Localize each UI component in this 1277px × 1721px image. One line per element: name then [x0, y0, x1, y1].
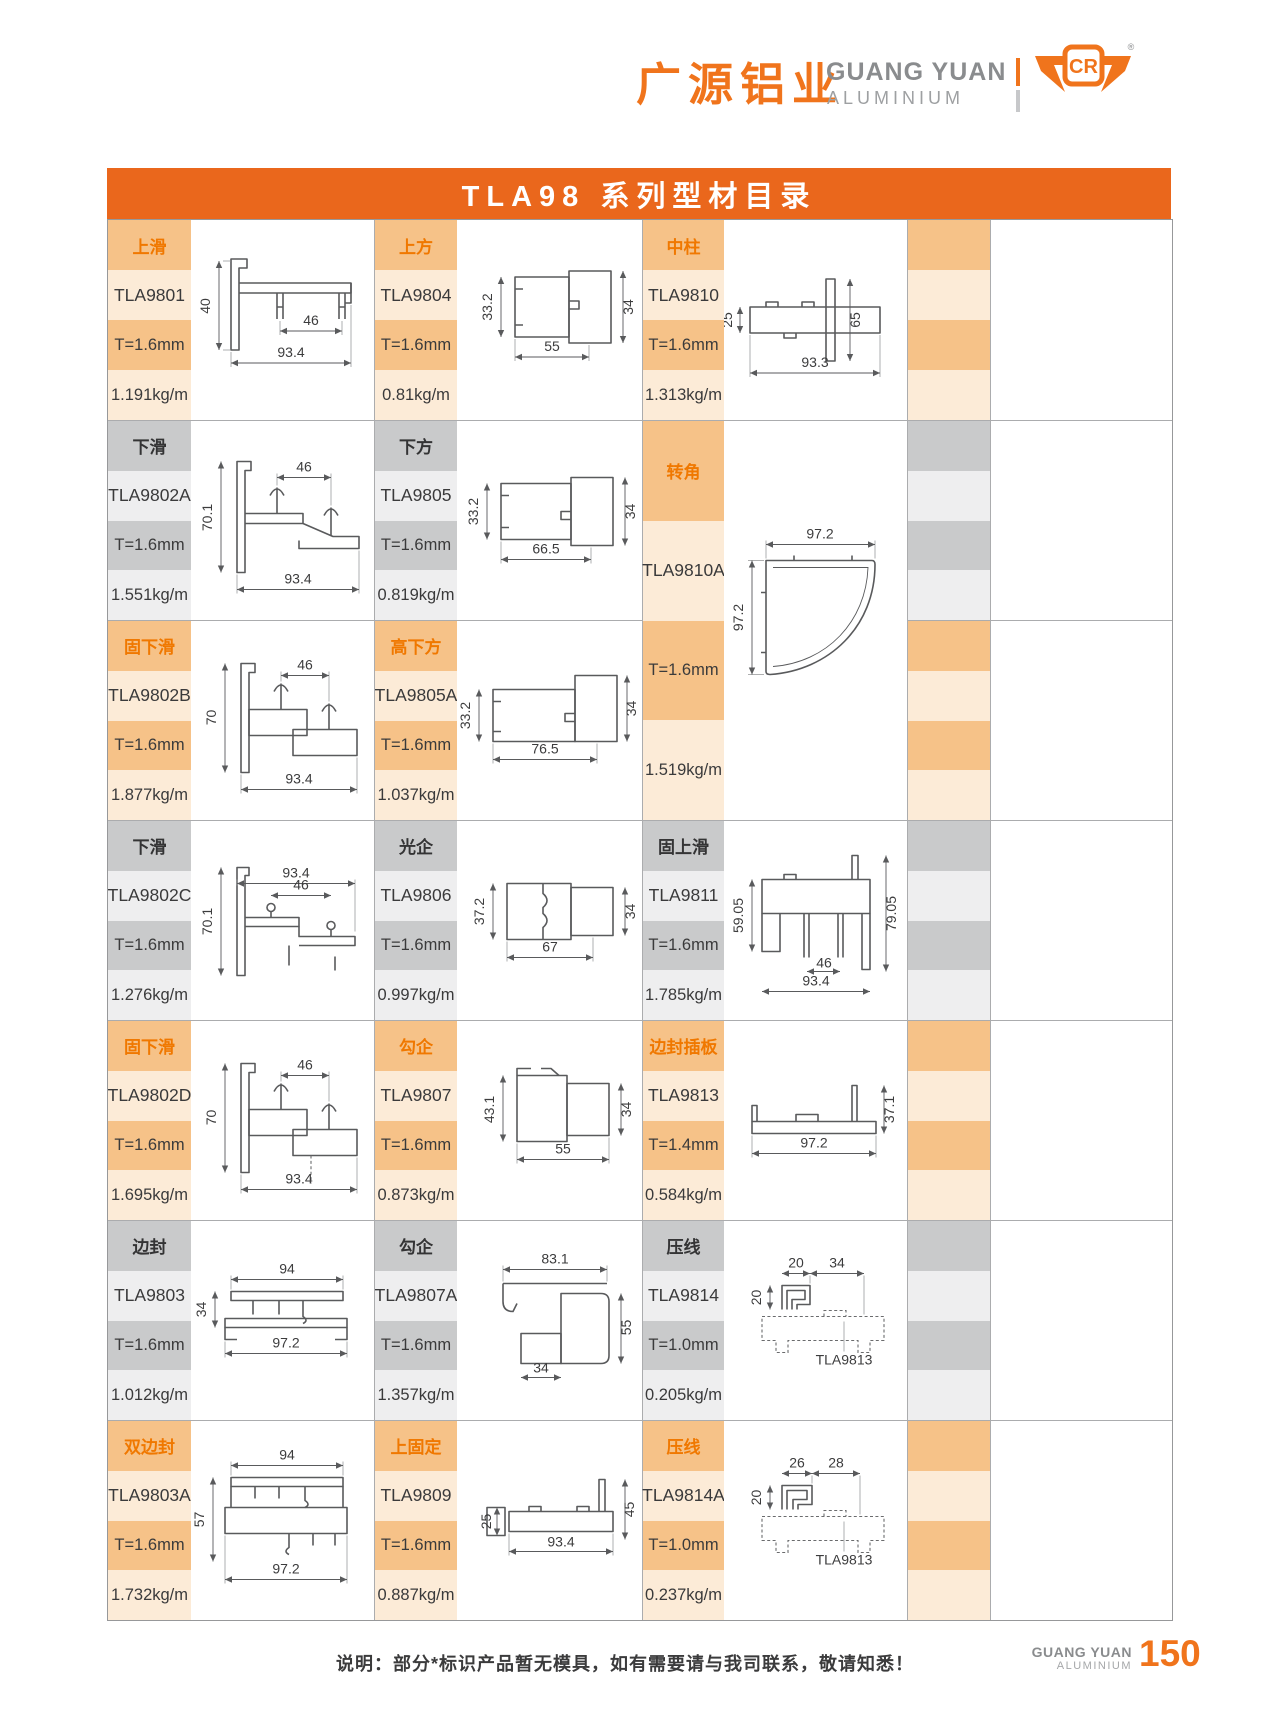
dim-label: 20: [748, 1490, 764, 1506]
category-label: 勾企: [375, 1021, 457, 1071]
dim-label: 46: [296, 459, 312, 475]
category-label: 压线: [643, 1221, 724, 1271]
entry-label-TLA9805A: 高下方 TLA9805A T=1.6mm 1.037kg/m: [374, 620, 457, 820]
profile-drawing-TLA9802A: 70.1 46 93.4: [191, 420, 374, 620]
profile-drawing-TLA9802C: 93.4 46 70.1: [191, 820, 374, 1020]
weight-label: 1.551kg/m: [108, 570, 191, 620]
dim-label: 59.05: [730, 898, 746, 933]
footer-brand-subtitle: ALUMINIUM: [1002, 1660, 1132, 1672]
profile-sketch-TLA9804: 33.2 34 55: [457, 220, 642, 420]
dim-label: 55: [555, 1141, 571, 1157]
profile-sketch-TLA9814: TLA9813 20 34 20: [724, 1221, 907, 1420]
category-label: 转角: [643, 421, 724, 521]
dim-label: 34: [829, 1255, 845, 1271]
dim-label: 37.2: [471, 898, 487, 925]
weight-label: 0.205kg/m: [643, 1370, 724, 1420]
header-divider-top: [1016, 58, 1020, 86]
dim-label: 67: [542, 939, 558, 955]
dim-label: 25: [724, 312, 735, 328]
model-number: TLA9804: [375, 270, 457, 320]
dim-label: 70.1: [199, 504, 215, 531]
thickness-label: T=1.6mm: [108, 320, 191, 370]
weight-label: 1.276kg/m: [108, 970, 191, 1020]
dim-label: 70.1: [199, 908, 215, 935]
thickness-label: T=1.6mm: [108, 1521, 191, 1571]
weight-label: 1.877kg/m: [108, 770, 191, 820]
model-number: TLA9814A: [643, 1471, 724, 1521]
model-number: TLA9806: [375, 871, 457, 921]
profile-sketch-TLA9802B: 70 46 93.4: [191, 621, 374, 820]
profile-drawing-TLA9802D: 70 46 93.4: [191, 1020, 374, 1220]
weight-label: 1.519kg/m: [643, 720, 724, 820]
dim-label: 26: [789, 1455, 805, 1471]
profile-drawing-TLA9807: 43.1 34 55: [457, 1020, 642, 1220]
empty-label-column: [907, 220, 990, 420]
category-label: 下滑: [108, 821, 191, 871]
dim-label: 43.1: [481, 1096, 497, 1123]
profile-sketch-TLA9810: 25 65 93.3: [724, 220, 907, 420]
thickness-label: T=1.6mm: [375, 1521, 457, 1571]
profile-drawing-TLA9811: 59.05 79.05 46 93.4: [724, 820, 907, 1020]
profile-sketch-TLA9802C: 93.4 46 70.1: [191, 821, 374, 1020]
model-number: TLA9807: [375, 1071, 457, 1121]
reference-model-label: TLA9813: [816, 1552, 873, 1568]
entry-label-TLA9807: 勾企 TLA9807 T=1.6mm 0.873kg/m: [374, 1020, 457, 1220]
entry-label-TLA9803: 边封 TLA9803 T=1.6mm 1.012kg/m: [108, 1220, 191, 1420]
category-label: 高下方: [375, 621, 457, 671]
profile-drawing-TLA9814A: TLA9813 26 28 20: [724, 1420, 907, 1620]
brand-name-chinese: 广源铝业: [636, 48, 844, 113]
dim-label: 46: [816, 955, 832, 971]
entry-label-TLA9804: 上方 TLA9804 T=1.6mm 0.81kg/m: [374, 220, 457, 420]
entry-label-TLA9802D: 固下滑 TLA9802D T=1.6mm 1.695kg/m: [108, 1020, 191, 1220]
model-number: TLA9814: [643, 1271, 724, 1321]
brand-subtitle: ALUMINIUM: [827, 88, 964, 109]
empty-drawing-column: [990, 820, 1172, 1020]
dim-label: 34: [623, 701, 639, 717]
dim-label: 94: [279, 1261, 295, 1277]
category-label: 下滑: [108, 421, 191, 471]
dim-label: 34: [533, 1360, 549, 1376]
thickness-label: T=1.6mm: [108, 921, 191, 971]
dim-label: 93.3: [801, 354, 828, 370]
model-number: TLA9802D: [108, 1071, 191, 1121]
dim-label: 20: [788, 1255, 804, 1271]
category-label: 边封插板: [643, 1021, 724, 1071]
empty-drawing-column: [990, 1420, 1172, 1620]
dim-label: 46: [293, 877, 309, 893]
thickness-label: T=1.6mm: [375, 320, 457, 370]
dim-label: 93.4: [277, 344, 304, 360]
profile-sketch-TLA9811: 59.05 79.05 46 93.4: [724, 821, 907, 1020]
model-number: TLA9807A: [375, 1271, 457, 1321]
profile-drawing-TLA9810A: 97.2 97.2: [724, 420, 907, 820]
model-number: TLA9803A: [108, 1471, 191, 1521]
dim-label: 83.1: [541, 1251, 568, 1267]
thickness-label: T=1.6mm: [375, 921, 457, 971]
dim-label: 55: [544, 338, 560, 354]
entry-label-TLA9809: 上固定 TLA9809 T=1.6mm 0.887kg/m: [374, 1420, 457, 1620]
model-number: TLA9802C: [108, 871, 191, 921]
thickness-label: T=1.6mm: [643, 320, 724, 370]
model-number: TLA9810: [643, 270, 724, 320]
weight-label: 1.313kg/m: [643, 370, 724, 420]
dim-label: 33.2: [479, 293, 495, 320]
weight-label: 1.191kg/m: [108, 370, 191, 420]
dim-label: 65: [847, 312, 863, 328]
dim-label: 34: [618, 1102, 634, 1118]
dim-label: 76.5: [531, 741, 558, 757]
profile-sketch-TLA9805A: 33.2 34 76.5: [457, 621, 642, 820]
category-label: 压线: [643, 1421, 724, 1471]
weight-label: 0.819kg/m: [375, 570, 457, 620]
dim-label: 93.4: [284, 571, 311, 587]
profile-sketch-TLA9814A: TLA9813 26 28 20: [724, 1421, 907, 1620]
dim-label: 25: [478, 1514, 494, 1530]
thickness-label: T=1.6mm: [643, 621, 724, 721]
profile-drawing-TLA9806: 37.2 34 67: [457, 820, 642, 1020]
profile-sketch-TLA9810A: 97.2 97.2: [724, 421, 907, 820]
thickness-label: T=1.6mm: [108, 1321, 191, 1371]
entry-label-TLA9803A: 双边封 TLA9803A T=1.6mm 1.732kg/m: [108, 1420, 191, 1620]
dim-label: 46: [297, 1057, 313, 1073]
empty-drawing-column: [990, 1220, 1172, 1420]
entry-label-TLA9802A: 下滑 TLA9802A T=1.6mm 1.551kg/m: [108, 420, 191, 620]
profile-drawing-TLA9801: 40 46 93.4: [191, 220, 374, 420]
category-label: 中柱: [643, 220, 724, 270]
weight-label: 1.357kg/m: [375, 1370, 457, 1420]
model-number: TLA9801: [108, 270, 191, 320]
empty-label-column: [907, 1020, 990, 1220]
dim-label: 93.4: [285, 1171, 312, 1187]
dim-label: 70: [203, 1110, 219, 1126]
weight-label: 1.012kg/m: [108, 1370, 191, 1420]
entry-label-TLA9802C: 下滑 TLA9802C T=1.6mm 1.276kg/m: [108, 820, 191, 1020]
empty-drawing-column: [990, 420, 1172, 620]
dim-label: 46: [297, 657, 313, 673]
profile-sketch-TLA9805: 33.2 34 66.5: [457, 421, 642, 620]
model-number: TLA9813: [643, 1071, 724, 1121]
category-label: 固上滑: [643, 821, 724, 871]
profile-sketch-TLA9807: 43.1 34 55: [457, 1021, 642, 1220]
footer-brand: GUANG YUAN ALUMINIUM: [1002, 1644, 1132, 1672]
empty-label-column: [907, 1220, 990, 1420]
dim-label: 66.5: [532, 541, 559, 557]
profile-drawing-TLA9813: 37.1 97.2: [724, 1020, 907, 1220]
profile-sketch-TLA9809: 25 45 93.4: [457, 1421, 642, 1620]
profile-drawing-TLA9803A: 94 57 97.2: [191, 1420, 374, 1620]
dim-label: 45: [621, 1502, 637, 1518]
profile-drawing-TLA9803: 94 34 97.2: [191, 1220, 374, 1420]
profile-drawing-TLA9805: 33.2 34 66.5: [457, 420, 642, 620]
dim-label: 93.4: [802, 973, 829, 989]
profile-drawing-TLA9804: 33.2 34 55: [457, 220, 642, 420]
thickness-label: T=1.6mm: [375, 1121, 457, 1171]
profile-sketch-TLA9806: 37.2 34 67: [457, 821, 642, 1020]
thickness-label: T=1.4mm: [643, 1121, 724, 1171]
dim-label: 28: [828, 1455, 844, 1471]
dim-label: 97.2: [800, 1135, 827, 1151]
thickness-label: T=1.6mm: [108, 1121, 191, 1171]
registered-mark: ®: [1128, 42, 1135, 52]
model-number: TLA9810A: [643, 521, 724, 621]
entry-label-TLA9810: 中柱 TLA9810 T=1.6mm 1.313kg/m: [642, 220, 724, 420]
dim-label: 20: [748, 1290, 764, 1306]
dim-label: 70: [203, 710, 219, 726]
brand-name-english: GUANG YUAN: [826, 58, 1006, 87]
entry-label-TLA9801: 上滑 TLA9801 T=1.6mm 1.191kg/m: [108, 220, 191, 420]
dim-label: 94: [279, 1447, 295, 1463]
logo-letters: CR: [1069, 56, 1098, 78]
dim-label: 34: [620, 299, 636, 315]
weight-label: 1.037kg/m: [375, 770, 457, 820]
dim-label: 34: [622, 504, 638, 520]
dim-label: 55: [618, 1320, 634, 1336]
profile-sketch-TLA9803: 94 34 97.2: [191, 1221, 374, 1420]
dim-label: 46: [303, 312, 319, 328]
model-number: TLA9803: [108, 1271, 191, 1321]
weight-label: 0.887kg/m: [375, 1570, 457, 1620]
category-label: 勾企: [375, 1221, 457, 1271]
dim-label: 97.2: [806, 526, 833, 542]
category-label: 边封: [108, 1221, 191, 1271]
dim-label: 97.2: [730, 604, 746, 631]
entry-label-TLA9814A: 压线 TLA9814A T=1.0mm 0.237kg/m: [642, 1420, 724, 1620]
dim-label: 40: [197, 298, 213, 314]
thickness-label: T=1.6mm: [108, 521, 191, 571]
weight-label: 1.695kg/m: [108, 1170, 191, 1220]
category-label: 固下滑: [108, 621, 191, 671]
entry-label-TLA9814: 压线 TLA9814 T=1.0mm 0.205kg/m: [642, 1220, 724, 1420]
profile-sketch-TLA9802A: 70.1 46 93.4: [191, 421, 374, 620]
dim-label: 93.4: [285, 771, 312, 787]
profile-drawing-TLA9802B: 70 46 93.4: [191, 620, 374, 820]
reference-model-label: TLA9813: [816, 1352, 873, 1368]
category-label: 双边封: [108, 1421, 191, 1471]
weight-label: 0.237kg/m: [643, 1570, 724, 1620]
weight-label: 0.81kg/m: [375, 370, 457, 420]
model-number: TLA9802B: [108, 671, 191, 721]
entry-label-TLA9806: 光企 TLA9806 T=1.6mm 0.997kg/m: [374, 820, 457, 1020]
empty-label-column: [907, 820, 990, 1020]
dim-label: 97.2: [272, 1335, 299, 1351]
thickness-label: T=1.6mm: [108, 721, 191, 771]
page-number: 150: [1139, 1633, 1201, 1675]
dim-label: 33.2: [465, 498, 481, 525]
category-label: 固下滑: [108, 1021, 191, 1071]
weight-label: 0.873kg/m: [375, 1170, 457, 1220]
category-label: 光企: [375, 821, 457, 871]
dim-label: 33.2: [457, 702, 473, 729]
entry-label-TLA9813: 边封插板 TLA9813 T=1.4mm 0.584kg/m: [642, 1020, 724, 1220]
profile-drawing-TLA9807A: 83.1 55 34: [457, 1220, 642, 1420]
category-label: 上方: [375, 220, 457, 270]
entry-label-TLA9802B: 固下滑 TLA9802B T=1.6mm 1.877kg/m: [108, 620, 191, 820]
entry-label-TLA9810A: 转角 TLA9810A T=1.6mm 1.519kg/m: [642, 420, 724, 820]
thickness-label: T=1.6mm: [643, 921, 724, 971]
thickness-label: T=1.6mm: [375, 721, 457, 771]
profile-drawing-TLA9814: TLA9813 20 34 20: [724, 1220, 907, 1420]
empty-label-column: [907, 620, 990, 820]
dim-label: 34: [193, 1302, 209, 1318]
empty-label-column: [907, 420, 990, 620]
model-number: TLA9811: [643, 871, 724, 921]
thickness-label: T=1.0mm: [643, 1521, 724, 1571]
model-number: TLA9805A: [375, 671, 457, 721]
catalog-table: 上滑 TLA9801 T=1.6mm 1.191kg/m 40 46 93.4: [107, 219, 1173, 1621]
weight-label: 0.584kg/m: [643, 1170, 724, 1220]
thickness-label: T=1.6mm: [375, 521, 457, 571]
weight-label: 1.732kg/m: [108, 1570, 191, 1620]
entry-label-TLA9811: 固上滑 TLA9811 T=1.6mm 1.785kg/m: [642, 820, 724, 1020]
profile-sketch-TLA9807A: 83.1 55 34: [457, 1221, 642, 1420]
empty-drawing-column: [990, 620, 1172, 820]
model-number: TLA9805: [375, 471, 457, 521]
catalog-page: 广源铝业 GUANG YUAN ALUMINIUM CR ® TLA98 系列型…: [0, 0, 1277, 1721]
dim-label: 57: [191, 1512, 207, 1528]
empty-label-column: [907, 1420, 990, 1620]
dim-label: 34: [622, 904, 638, 920]
category-label: 下方: [375, 421, 457, 471]
model-number: TLA9802A: [108, 471, 191, 521]
empty-drawing-column: [990, 1020, 1172, 1220]
dim-label: 93.4: [547, 1534, 574, 1550]
profile-sketch-TLA9802D: 70 46 93.4: [191, 1021, 374, 1220]
profile-sketch-TLA9813: 37.1 97.2: [724, 1021, 907, 1220]
page-title: TLA98 系列型材目录: [107, 168, 1171, 219]
company-logo-icon: CR ®: [1032, 42, 1136, 108]
profile-drawing-TLA9810: 25 65 93.3: [724, 220, 907, 420]
footer-brand-english: GUANG YUAN: [1002, 1644, 1132, 1660]
profile-sketch-TLA9803A: 94 57 97.2: [191, 1421, 374, 1620]
profile-drawing-TLA9805A: 33.2 34 76.5: [457, 620, 642, 820]
model-number: TLA9809: [375, 1471, 457, 1521]
thickness-label: T=1.6mm: [375, 1321, 457, 1371]
profile-drawing-TLA9809: 25 45 93.4: [457, 1420, 642, 1620]
thickness-label: T=1.0mm: [643, 1321, 724, 1371]
entry-label-TLA9805: 下方 TLA9805 T=1.6mm 0.819kg/m: [374, 420, 457, 620]
profile-sketch-TLA9801: 40 46 93.4: [191, 220, 374, 420]
category-label: 上滑: [108, 220, 191, 270]
weight-label: 0.997kg/m: [375, 970, 457, 1020]
dim-label: 97.2: [272, 1561, 299, 1577]
dim-label: 79.05: [883, 896, 899, 931]
header-divider-bottom: [1016, 90, 1020, 112]
entry-label-TLA9807A: 勾企 TLA9807A T=1.6mm 1.357kg/m: [374, 1220, 457, 1420]
category-label: 上固定: [375, 1421, 457, 1471]
footer-note: 说明：部分*标识产品暂无模具，如有需要请与我司联系，敬请知悉！: [336, 1650, 914, 1676]
dim-label: 37.1: [881, 1096, 897, 1123]
empty-drawing-column: [990, 220, 1172, 420]
weight-label: 1.785kg/m: [643, 970, 724, 1020]
